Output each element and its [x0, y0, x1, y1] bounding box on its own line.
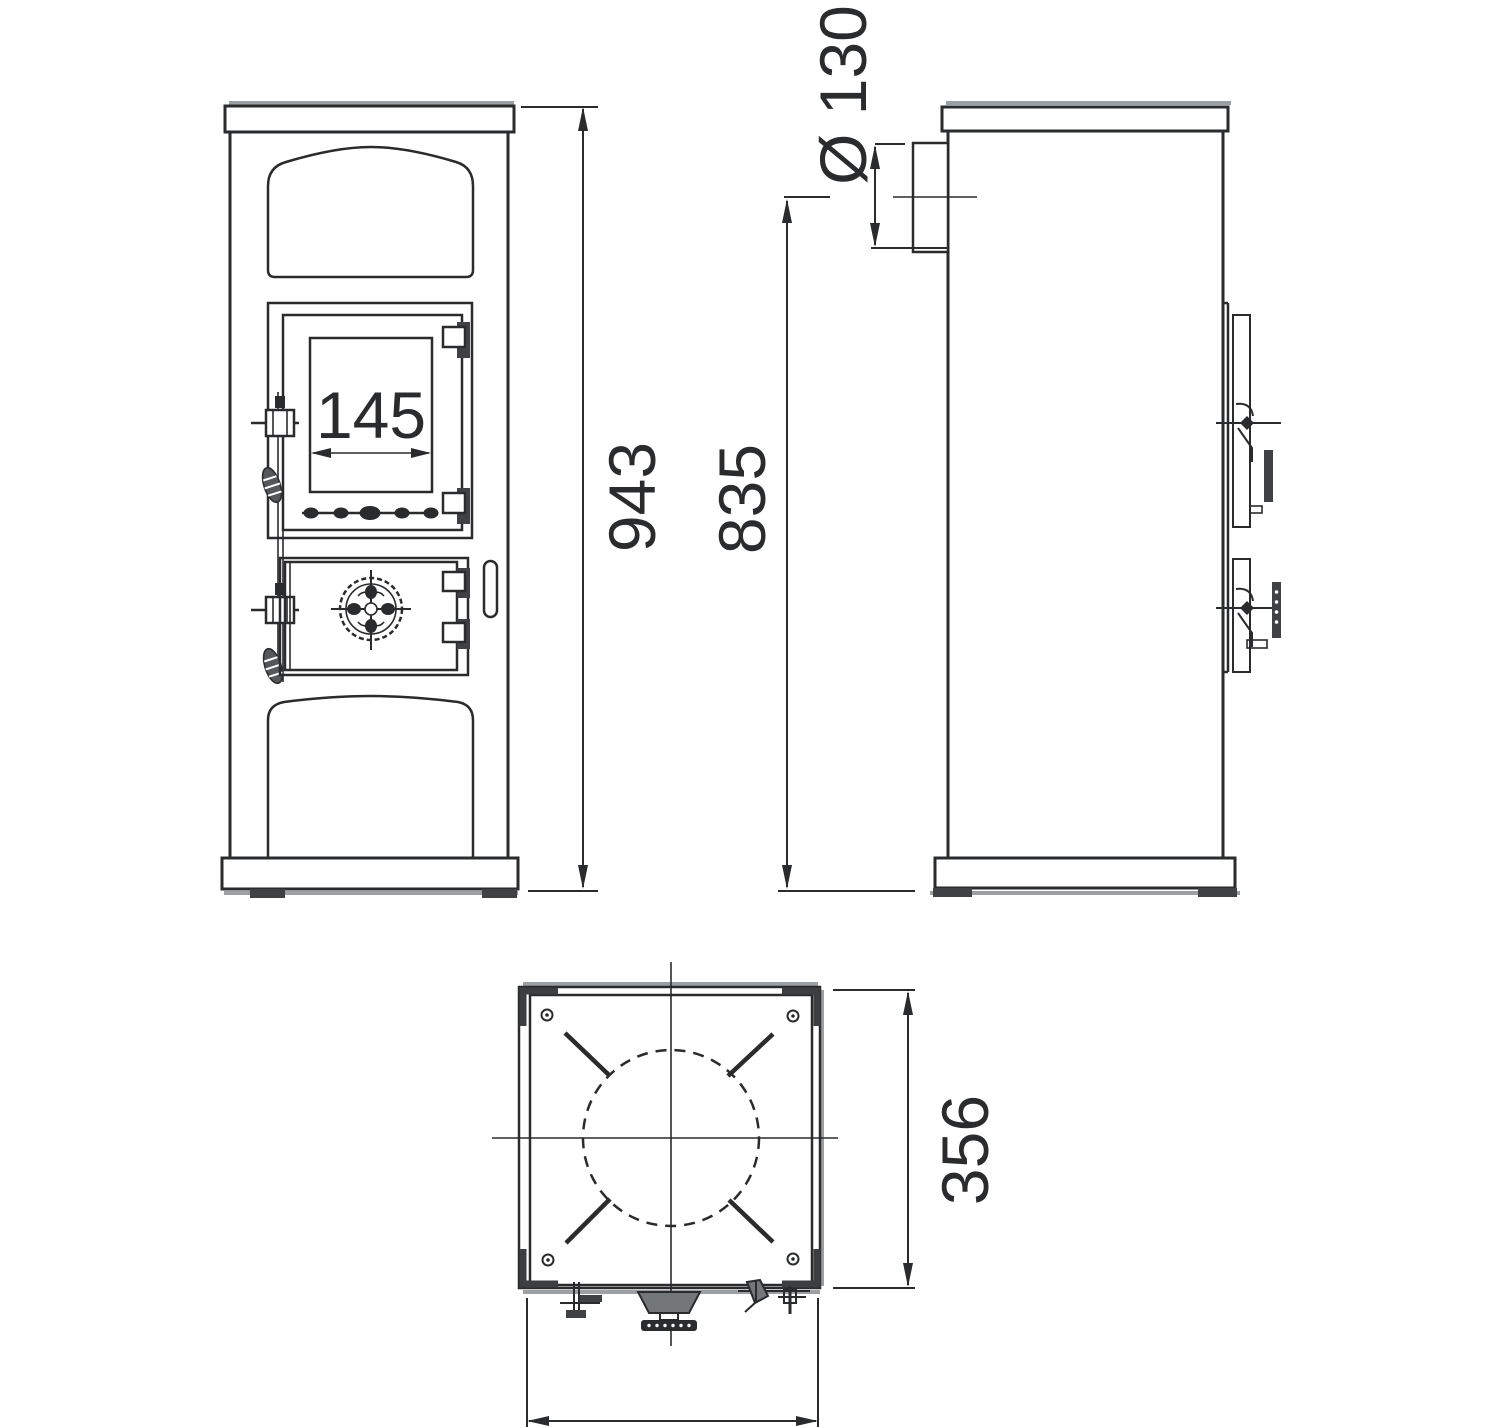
overall-height-label: 943	[595, 442, 669, 552]
latch-pivot	[1240, 416, 1254, 430]
dimension-overall-height: 943	[521, 107, 669, 891]
rosette-center	[365, 603, 377, 615]
hinge-plate	[443, 327, 465, 347]
hinge-plate	[443, 572, 465, 591]
foot-front	[1198, 888, 1237, 897]
hinge-plate	[443, 623, 465, 642]
latch-profile-lower	[1216, 582, 1281, 648]
twist-dot	[1275, 620, 1279, 624]
twist-dot	[1275, 600, 1279, 604]
screw-dot	[545, 1013, 549, 1017]
hinge-plate	[443, 493, 465, 513]
screw-dot	[791, 1257, 795, 1261]
foot-left	[250, 889, 285, 898]
twist-dot	[1275, 590, 1279, 594]
arrow-up	[903, 991, 913, 1015]
latch-plate	[266, 410, 294, 436]
flue-diameter-label: Ø 130	[806, 5, 880, 185]
dimension-depth: 356	[833, 990, 1002, 1288]
arrow-down	[870, 223, 880, 247]
arrow-right	[796, 1416, 818, 1426]
side-view	[893, 103, 1281, 897]
latch-pivot	[1240, 601, 1254, 615]
rosette-knob	[347, 603, 361, 615]
twist-handle-profile	[1264, 450, 1273, 502]
arrow-down	[903, 1263, 913, 1287]
handle-stem	[660, 1313, 678, 1320]
arrow-down	[782, 865, 792, 889]
twist-dot	[679, 1324, 682, 1327]
top-plate	[225, 106, 514, 132]
vent-bolt	[304, 508, 319, 519]
rosette-knob	[381, 603, 395, 615]
front-view: 145	[222, 103, 518, 898]
top-plate-side	[942, 107, 1228, 131]
stove-drawing: 145	[0, 0, 1500, 1427]
latch-stop	[1250, 506, 1262, 513]
screw-dot	[791, 1014, 795, 1018]
flue-height-label: 835	[705, 444, 779, 554]
arrow-up	[578, 107, 588, 131]
hinge-foot	[566, 1310, 586, 1318]
latch-nub	[275, 396, 285, 408]
twist-dot	[663, 1324, 666, 1327]
vent-bolt	[334, 508, 349, 519]
plinth	[222, 858, 518, 889]
glass-width-label: 145	[316, 378, 426, 452]
screw-dot	[546, 1258, 550, 1262]
depth-label: 356	[928, 1095, 1002, 1205]
latch-profile-upper	[1216, 404, 1281, 513]
twist-dot	[687, 1324, 690, 1327]
top-view	[492, 962, 838, 1346]
vent-bolt	[395, 508, 410, 519]
arrow-down	[578, 865, 588, 889]
dimension-flue-height: 835	[705, 197, 915, 891]
hinge-plate-top	[580, 1295, 602, 1302]
vent-bolt	[424, 508, 439, 519]
drawing-canvas: 145	[0, 0, 1500, 1427]
foot-back	[933, 888, 972, 897]
twist-dot	[1275, 610, 1279, 614]
ash-door-profile	[1233, 559, 1250, 672]
twist-dot	[647, 1324, 650, 1327]
twist-dot	[671, 1324, 674, 1327]
twist-dot	[655, 1324, 658, 1327]
arrow-left	[527, 1416, 549, 1426]
foot-right	[482, 889, 517, 898]
stove-body-side	[948, 131, 1223, 858]
dimension-glass-width: 145	[311, 378, 431, 458]
plinth-side	[935, 858, 1235, 888]
vent-knob	[360, 506, 381, 520]
arrow-up	[782, 199, 792, 223]
handle-cone	[638, 1292, 700, 1313]
